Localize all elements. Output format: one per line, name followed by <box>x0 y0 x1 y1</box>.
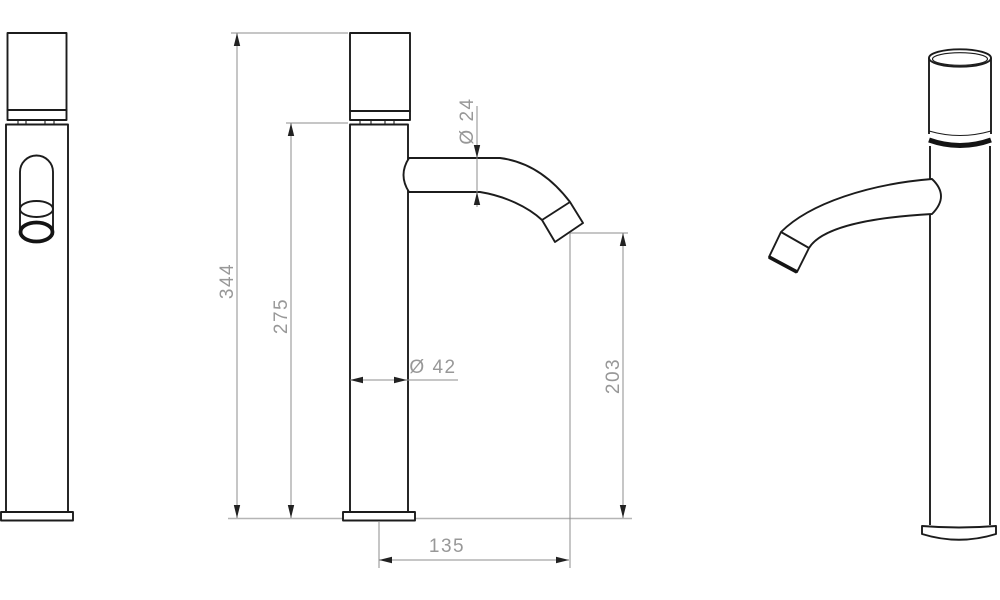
side-body <box>350 125 408 513</box>
arrow-up-203 <box>620 233 626 246</box>
side-handle-cap <box>350 33 410 111</box>
dim-label-total-height: 344 <box>217 263 238 299</box>
arrow-down-344 <box>234 505 240 518</box>
perspective-view <box>769 49 996 539</box>
side-spout <box>404 158 584 242</box>
front-handle-cap <box>8 33 67 110</box>
dim-label-body-diameter: Ø 42 <box>409 357 456 378</box>
front-body <box>6 125 68 513</box>
arrow-down-275 <box>288 505 294 518</box>
arrow-up-24 <box>474 192 480 205</box>
arrow-down-203 <box>620 505 626 518</box>
arrow-right-135 <box>556 557 569 563</box>
front-view <box>1 33 73 521</box>
arrow-left-135 <box>379 557 392 563</box>
persp-cap-dark-ring <box>929 140 991 146</box>
dimension-annotations: 344 275 Ø 42 Ø 24 203 <box>217 33 628 568</box>
dim-label-spout-diameter: Ø 24 <box>457 97 478 144</box>
dim-spout-reach: 135 <box>379 536 569 563</box>
front-base-flange <box>1 512 73 521</box>
arrow-down-24 <box>474 145 480 158</box>
front-cap-collar <box>8 110 67 120</box>
dim-body-height: 275 <box>271 123 294 518</box>
persp-spout <box>769 179 941 272</box>
arrow-up-344 <box>234 33 240 46</box>
dim-label-spout-reach: 135 <box>429 536 465 557</box>
persp-base-flange <box>922 526 996 540</box>
dim-label-outlet-height: 203 <box>603 358 624 394</box>
dim-outlet-height: 203 <box>603 233 626 518</box>
side-base-flange <box>343 512 415 521</box>
arrow-up-275 <box>288 123 294 136</box>
persp-cap-top-ellipse <box>929 49 991 66</box>
dim-label-body-height: 275 <box>271 298 292 334</box>
persp-handle-cap <box>929 49 991 145</box>
technical-drawing-canvas: 344 275 Ø 42 Ø 24 203 <box>0 0 1000 600</box>
faucet-dimension-drawing: 344 275 Ø 42 Ø 24 203 <box>0 0 1000 600</box>
dim-total-height: 344 <box>217 33 240 518</box>
persp-cap-bottom-arc <box>929 131 991 136</box>
side-cap-collar <box>350 111 410 120</box>
